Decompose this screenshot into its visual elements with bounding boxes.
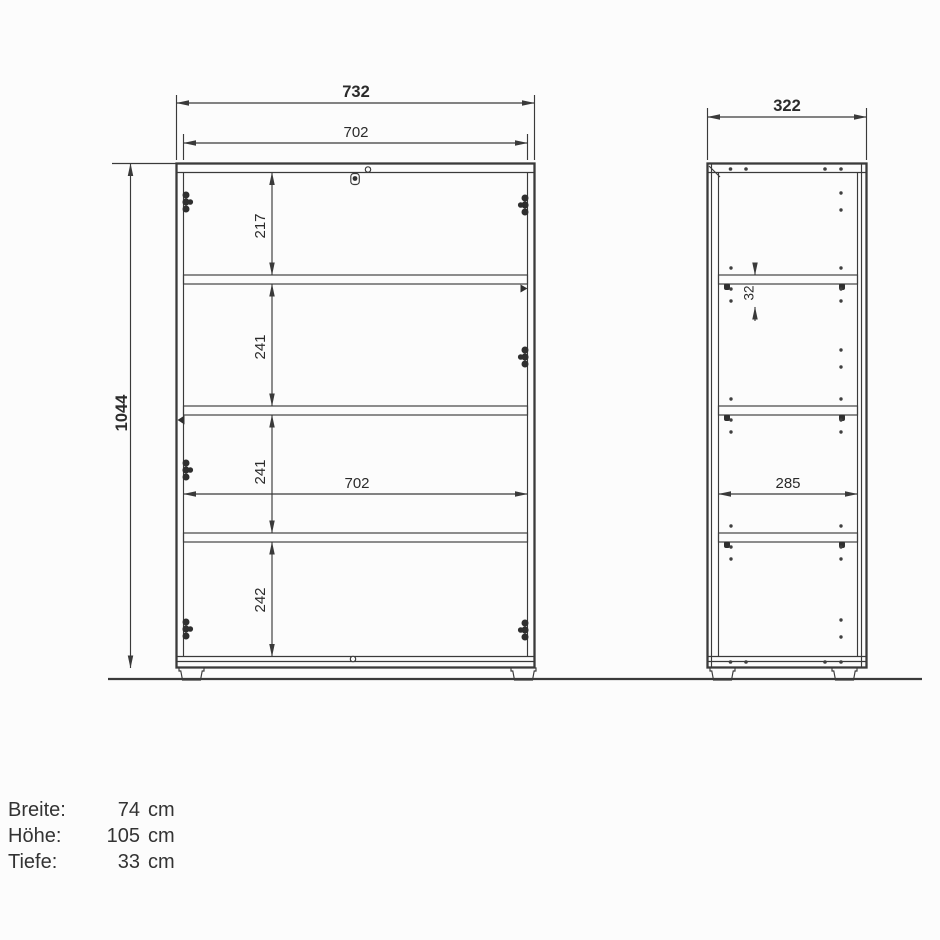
top-connector-pin [353,176,358,181]
dim-label-hole-pitch: 32 [742,285,757,300]
spec-unit: cm [148,823,175,849]
shelf-cam-fitting [724,542,730,549]
dim-label-inner-width-mid: 702 [344,475,369,492]
front-view: 732 702 1044 [112,83,536,680]
dim-label-height: 1044 [113,394,131,432]
dim-label-section-2: 241 [252,334,269,359]
bottom-hole [350,656,355,661]
dim-label-section-4: 242 [252,587,269,612]
shelf-cam-fitting [724,415,730,422]
side-view: 322 32 [708,97,867,680]
spec-unit: cm [148,797,175,823]
spec-unit: cm [148,849,175,875]
shelf-cam-fitting [724,284,730,291]
spec-table: Breite:74cm Höhe:105cm Tiefe:33cm [8,797,175,875]
spec-label: Breite: [8,797,100,823]
dim-label-inner-depth: 285 [775,475,800,492]
dim-label-section-3: 241 [252,459,269,484]
spec-label: Höhe: [8,823,100,849]
spec-row-hoehe: Höhe:105cm [8,823,175,849]
spec-row-breite: Breite:74cm [8,797,175,823]
dim-label-depth: 322 [773,97,801,115]
spec-value: 105 [100,823,140,849]
spec-value: 74 [100,797,140,823]
top-hole [365,167,370,172]
spec-label: Tiefe: [8,849,100,875]
dim-label-section-1: 217 [252,213,269,238]
dim-label-outer-width: 732 [342,83,370,101]
dim-label-inner-width-top: 702 [343,124,368,141]
spec-value: 33 [100,849,140,875]
spec-row-tiefe: Tiefe:33cm [8,849,175,875]
technical-drawing-canvas: 732 702 1044 [0,0,940,940]
